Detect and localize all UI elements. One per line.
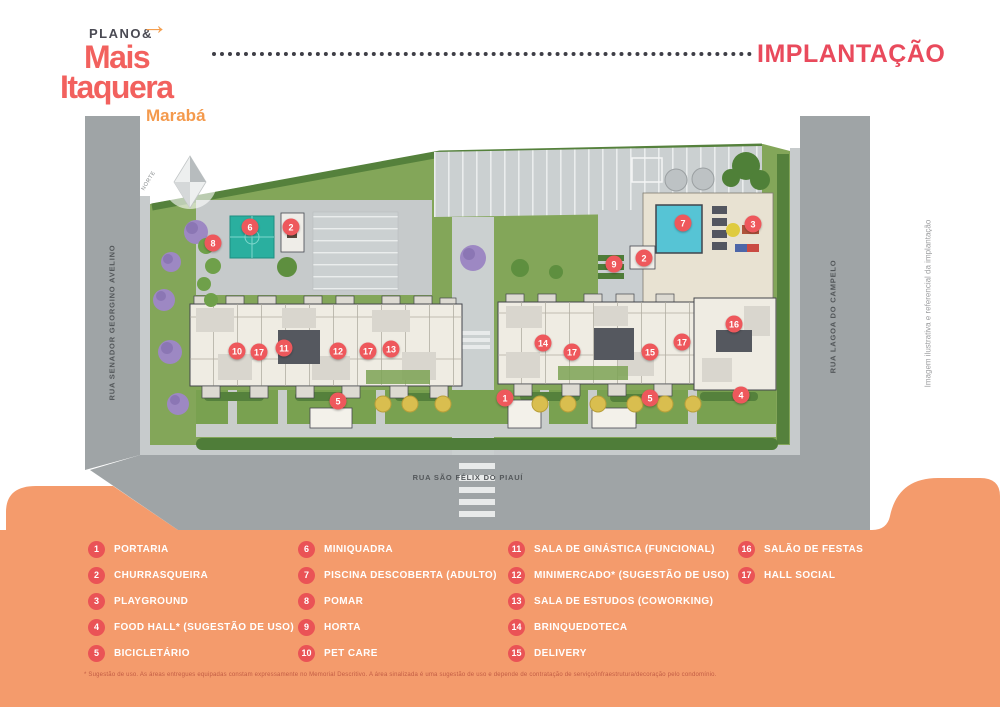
logo-line1: Mais (60, 42, 172, 72)
map-marker-5: 5 (642, 390, 659, 407)
street-label-right: RUA LAGOA DO CAMPELO (829, 167, 838, 467)
parking-small (313, 212, 398, 290)
legend-number-badge: 11 (508, 541, 525, 558)
legend-column-1: 1PORTARIA2CHURRASQUEIRA3PLAYGROUND4FOOD … (88, 536, 294, 666)
map-marker-16: 16 (726, 316, 743, 333)
legend-label: POMAR (324, 596, 363, 607)
legend-label: PISCINA DESCOBERTA (ADULTO) (324, 570, 497, 581)
map-marker-11: 11 (276, 340, 293, 357)
legend-item: 1PORTARIA (88, 536, 294, 562)
legend-item: 9HORTA (298, 614, 497, 640)
legend-label: MINIQUADRA (324, 544, 393, 555)
legend-label: SALÃO DE FESTAS (764, 544, 863, 555)
map-marker-15: 15 (642, 344, 659, 361)
legend-number-badge: 8 (298, 593, 315, 610)
map-marker-17: 17 (564, 344, 581, 361)
logo-subtitle: Marabá (146, 106, 206, 126)
legend-number-badge: 13 (508, 593, 525, 610)
map-marker-17: 17 (251, 344, 268, 361)
map-marker-14: 14 (535, 335, 552, 352)
legend-number-badge: 14 (508, 619, 525, 636)
legend-number-badge: 6 (298, 541, 315, 558)
legend-item: 10PET CARE (298, 640, 497, 666)
map-marker-8: 8 (205, 235, 222, 252)
legend-item: 7PISCINA DESCOBERTA (ADULTO) (298, 562, 497, 588)
legend-item: 11SALA DE GINÁSTICA (FUNCIONAL) (508, 536, 729, 562)
legend-number-badge: 3 (88, 593, 105, 610)
map-marker-17: 17 (360, 343, 377, 360)
legend-label: FOOD HALL* (SUGESTÃO DE USO) (114, 622, 294, 633)
legend-column-3: 11SALA DE GINÁSTICA (FUNCIONAL)12MINIMER… (508, 536, 729, 666)
legend-item: 15DELIVERY (508, 640, 729, 666)
map-marker-9: 9 (606, 256, 623, 273)
legend-item: 4FOOD HALL* (SUGESTÃO DE USO) (88, 614, 294, 640)
legend-number-badge: 4 (88, 619, 105, 636)
legend-item: 17HALL SOCIAL (738, 562, 863, 588)
map-marker-13: 13 (383, 341, 400, 358)
arrow-icon: → (141, 10, 168, 41)
legend-label: CHURRASQUEIRA (114, 570, 208, 581)
legend-label: PLAYGROUND (114, 596, 188, 607)
legend-label: HALL SOCIAL (764, 570, 835, 581)
legend-number-badge: 17 (738, 567, 755, 584)
north-compass-icon (163, 155, 217, 209)
map-marker-17: 17 (674, 334, 691, 351)
dotted-divider (212, 52, 752, 56)
legend-item: 2CHURRASQUEIRA (88, 562, 294, 588)
map-marker-3: 3 (745, 216, 762, 233)
legend-label: SALA DE GINÁSTICA (FUNCIONAL) (534, 544, 715, 555)
legend-item: 5BICICLETÁRIO (88, 640, 294, 666)
legend-label: BICICLETÁRIO (114, 648, 190, 659)
legend-item: 8POMAR (298, 588, 497, 614)
legend-label: BRINQUEDOTECA (534, 622, 628, 633)
map-marker-7: 7 (675, 215, 692, 232)
street-label-bottom: RUA SÃO FÉLIX DO PIAUÍ (318, 473, 618, 482)
map-marker-4: 4 (733, 387, 750, 404)
legend-number-badge: 7 (298, 567, 315, 584)
legend-number-badge: 10 (298, 645, 315, 662)
legend-label: HORTA (324, 622, 361, 633)
map-marker-2: 2 (283, 219, 300, 236)
map-marker-2: 2 (636, 250, 653, 267)
legend-item: 6MINIQUADRA (298, 536, 497, 562)
legend-number-badge: 15 (508, 645, 525, 662)
disclaimer-side-note: Imagem ilustrativa e referencial da impl… (924, 154, 933, 454)
legend-label: DELIVERY (534, 648, 587, 659)
legend-number-badge: 2 (88, 567, 105, 584)
map-marker-1: 1 (497, 390, 514, 407)
legend-number-badge: 1 (88, 541, 105, 558)
legend-label: SALA DE ESTUDOS (COWORKING) (534, 596, 713, 607)
logo-line2: Itaquera (60, 69, 172, 105)
map-marker-6: 6 (242, 219, 259, 236)
legend-item: 13SALA DE ESTUDOS (COWORKING) (508, 588, 729, 614)
map-marker-10: 10 (229, 343, 246, 360)
project-logo: Mais Itaquera (60, 42, 172, 102)
legend-number-badge: 5 (88, 645, 105, 662)
legend-label: PET CARE (324, 648, 378, 659)
legend-item: 16SALÃO DE FESTAS (738, 536, 863, 562)
legend-column-2: 6MINIQUADRA7PISCINA DESCOBERTA (ADULTO)8… (298, 536, 497, 666)
page: PLANO& → Mais Itaquera Marabá IMPLANTAÇÃ… (0, 0, 1000, 707)
legend-item: 3PLAYGROUND (88, 588, 294, 614)
page-title: IMPLANTAÇÃO (757, 40, 945, 69)
map-marker-12: 12 (330, 343, 347, 360)
street-label-left: RUA SENADOR GEORGINO AVELINO (108, 173, 117, 473)
legend-column-4: 16SALÃO DE FESTAS17HALL SOCIAL (738, 536, 863, 588)
legend-footnote: * Sugestão de uso. As áreas entregues eq… (84, 672, 964, 678)
legend-item: 14BRINQUEDOTECA (508, 614, 729, 640)
map-marker-5: 5 (330, 393, 347, 410)
legend-number-badge: 16 (738, 541, 755, 558)
legend-item: 12MINIMERCADO* (SUGESTÃO DE USO) (508, 562, 729, 588)
legend-label: MINIMERCADO* (SUGESTÃO DE USO) (534, 570, 729, 581)
legend-label: PORTARIA (114, 544, 169, 555)
legend-number-badge: 12 (508, 567, 525, 584)
legend-number-badge: 9 (298, 619, 315, 636)
